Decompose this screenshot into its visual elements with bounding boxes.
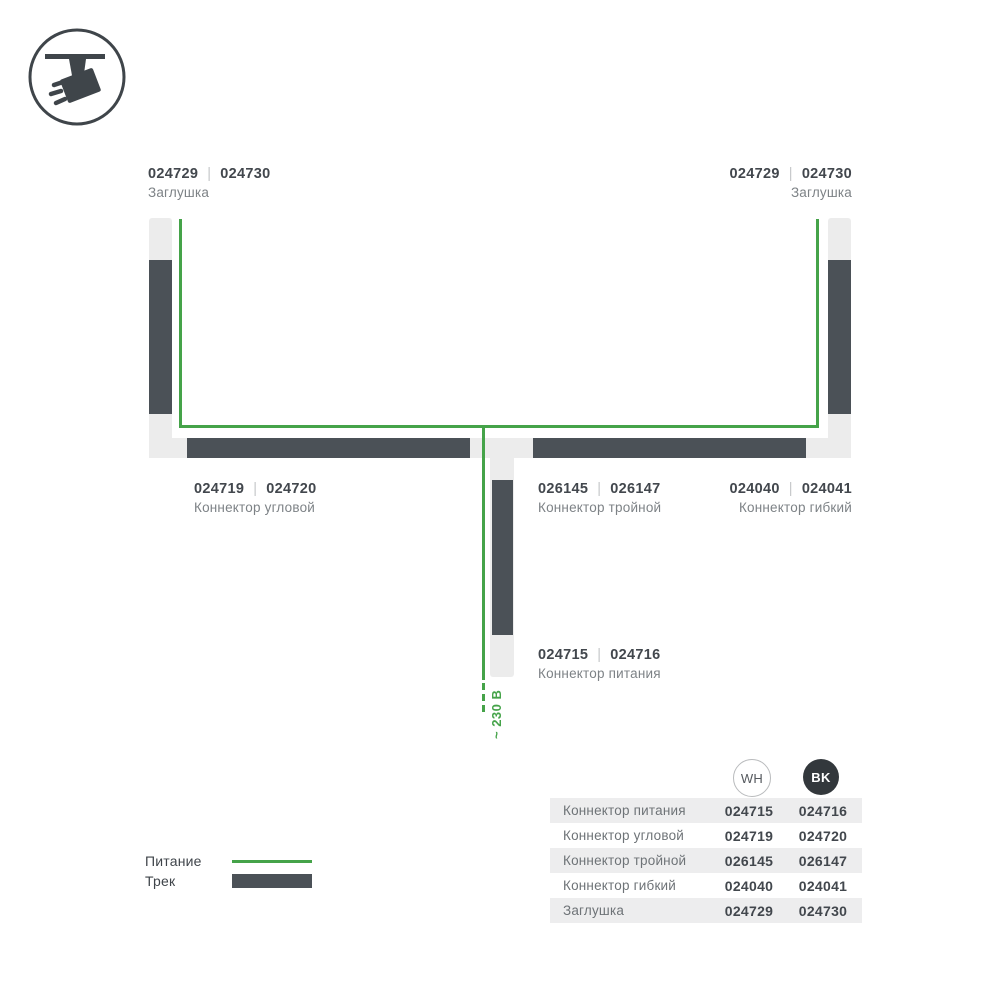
corner-connector-right	[806, 438, 851, 458]
table-row-name: Заглушка	[550, 903, 714, 918]
part-name: Заглушка	[730, 186, 852, 200]
table-row: Заглушка 024729 024730	[550, 898, 862, 923]
legend-power-line-swatch	[232, 860, 312, 863]
table-row-bk-code: 024720	[784, 828, 862, 844]
part-number-wh: 026145	[538, 481, 588, 497]
track-segment-left-vertical	[149, 260, 172, 414]
track-segment-center-vertical	[492, 480, 513, 635]
track-segment-horizontal-right	[533, 438, 806, 458]
table-row-name: Коннектор тройной	[550, 853, 714, 868]
part-number-wh: 024729	[730, 166, 780, 182]
table-row-name: Коннектор питания	[550, 803, 714, 818]
part-numbers: 026145|026147	[538, 482, 661, 497]
voltage-label: ~ 230 В	[489, 690, 504, 739]
part-numbers: 024719|024720	[194, 482, 316, 497]
table-row-wh-code: 026145	[714, 853, 784, 869]
table-row: Коннектор тройной 026145 026147	[550, 848, 862, 873]
label-flexible-connector: 024040|024041 Коннектор гибкий	[730, 482, 852, 514]
power-line-left	[179, 219, 182, 428]
part-number-bk: 024716	[610, 647, 660, 663]
table-row-wh-code: 024719	[714, 828, 784, 844]
label-triple-connector: 026145|026147 Коннектор тройной	[538, 482, 661, 514]
legend-track-bar-swatch	[232, 874, 312, 888]
part-number-bk: 024720	[266, 481, 316, 497]
label-endcap-right: 024729|024730 Заглушка	[730, 167, 852, 199]
power-line-center-dashed	[482, 683, 485, 713]
color-badge-black: BK	[803, 759, 839, 795]
track-segment-right-vertical	[828, 260, 851, 414]
separator: |	[244, 481, 266, 497]
part-number-bk: 024730	[802, 166, 852, 182]
track-system-scheme: ~ 230 В 024729|024730 Заглушка 024729|02…	[0, 0, 1000, 1000]
part-name: Коннектор питания	[538, 667, 661, 681]
table-row-bk-code: 024716	[784, 803, 862, 819]
separator: |	[198, 166, 220, 182]
part-numbers: 024729|024730	[148, 167, 270, 182]
power-line-horizontal	[179, 425, 819, 428]
legend: Питание Трек	[145, 851, 312, 891]
table-row: Коннектор гибкий 024040 024041	[550, 873, 862, 898]
table-row-wh-code: 024729	[714, 903, 784, 919]
parts-table-rows: Коннектор питания 024715 024716 Коннекто…	[550, 798, 862, 923]
part-numbers: 024729|024730	[730, 167, 852, 182]
table-row-bk-code: 024730	[784, 903, 862, 919]
legend-power-label: Питание	[145, 853, 232, 869]
part-name: Коннектор угловой	[194, 501, 316, 515]
separator: |	[588, 647, 610, 663]
part-number-bk: 026147	[610, 481, 660, 497]
table-row-bk-code: 026147	[784, 853, 862, 869]
part-numbers: 024040|024041	[730, 482, 852, 497]
legend-row-track: Трек	[145, 871, 312, 891]
part-name: Коннектор тройной	[538, 501, 661, 515]
table-row: Коннектор угловой 024719 024720	[550, 823, 862, 848]
legend-track-label: Трек	[145, 873, 232, 889]
legend-row-power: Питание	[145, 851, 312, 871]
part-number-bk: 024730	[220, 166, 270, 182]
track-spotlight-icon-svg	[27, 27, 127, 127]
power-line-center	[482, 428, 485, 680]
table-row-name: Коннектор гибкий	[550, 878, 714, 893]
corner-connector-left	[149, 438, 187, 458]
part-number-bk: 024041	[802, 481, 852, 497]
table-row-wh-code: 024040	[714, 878, 784, 894]
track-spotlight-icon	[27, 27, 127, 127]
label-corner-connector: 024719|024720 Коннектор угловой	[194, 482, 316, 514]
part-number-wh: 024715	[538, 647, 588, 663]
table-row-wh-code: 024715	[714, 803, 784, 819]
label-power-connector: 024715|024716 Коннектор питания	[538, 648, 661, 680]
label-endcap-left: 024729|024730 Заглушка	[148, 167, 270, 199]
table-row-bk-code: 024041	[784, 878, 862, 894]
part-name: Коннектор гибкий	[730, 501, 852, 515]
part-name: Заглушка	[148, 186, 270, 200]
part-numbers: 024715|024716	[538, 648, 661, 663]
part-number-wh: 024719	[194, 481, 244, 497]
separator: |	[780, 166, 802, 182]
separator: |	[780, 481, 802, 497]
separator: |	[588, 481, 610, 497]
table-row-name: Коннектор угловой	[550, 828, 714, 843]
part-number-wh: 024040	[730, 481, 780, 497]
power-line-right	[816, 219, 819, 428]
color-badge-white: WH	[733, 759, 771, 797]
table-row: Коннектор питания 024715 024716	[550, 798, 862, 823]
part-number-wh: 024729	[148, 166, 198, 182]
track-segment-horizontal-left	[187, 438, 470, 458]
